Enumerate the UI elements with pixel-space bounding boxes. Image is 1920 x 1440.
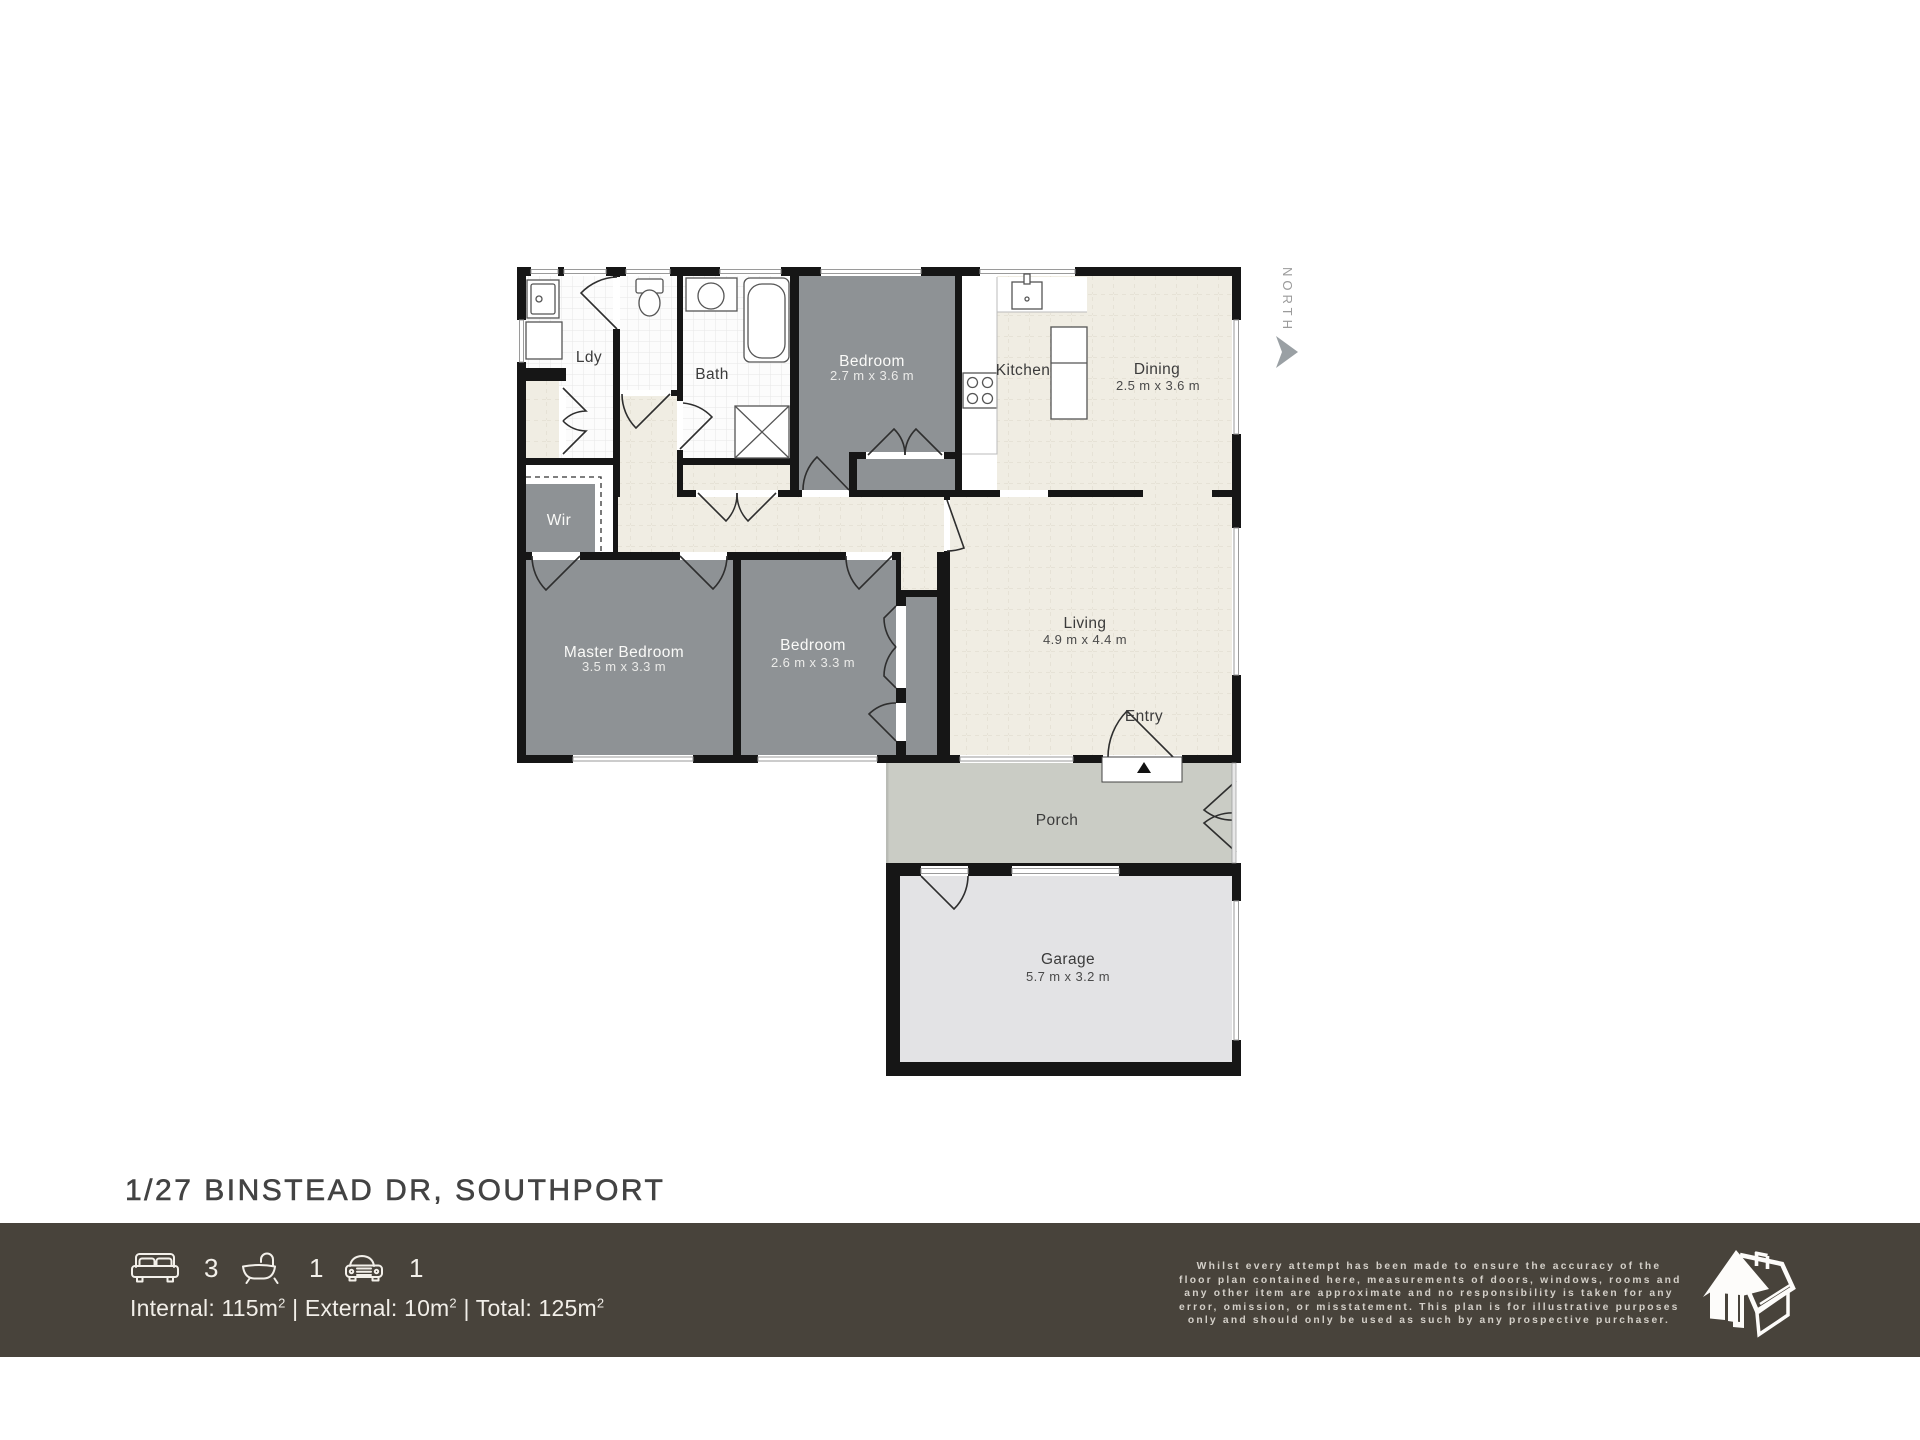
svg-text:Bath: Bath [695,366,729,383]
svg-text:Living: Living [1064,615,1107,632]
svg-text:4.9 m x 4.4 m: 4.9 m x 4.4 m [1043,632,1127,647]
svg-text:Garage: Garage [1041,951,1095,968]
svg-text:Entry: Entry [1125,708,1163,725]
svg-text:Dining: Dining [1134,361,1180,378]
svg-text:1: 1 [309,1253,323,1283]
svg-text:NORTH: NORTH [1280,267,1295,333]
svg-text:3.5 m x 3.3 m: 3.5 m x 3.3 m [582,659,666,674]
svg-text:2.6 m x 3.3 m: 2.6 m x 3.3 m [771,655,855,670]
svg-text:3: 3 [204,1253,218,1283]
svg-text:Porch: Porch [1036,812,1079,829]
svg-text:1: 1 [409,1253,423,1283]
svg-text:Kitchen: Kitchen [996,362,1051,379]
svg-text:2.5 m x 3.6 m: 2.5 m x 3.6 m [1116,378,1200,393]
svg-text:Bedroom: Bedroom [780,637,846,654]
svg-text:5.7 m x 3.2 m: 5.7 m x 3.2 m [1026,969,1110,984]
svg-text:2.7 m x 3.6 m: 2.7 m x 3.6 m [830,368,914,383]
svg-text:Ldy: Ldy [576,349,602,366]
svg-text:Wir: Wir [547,512,571,529]
